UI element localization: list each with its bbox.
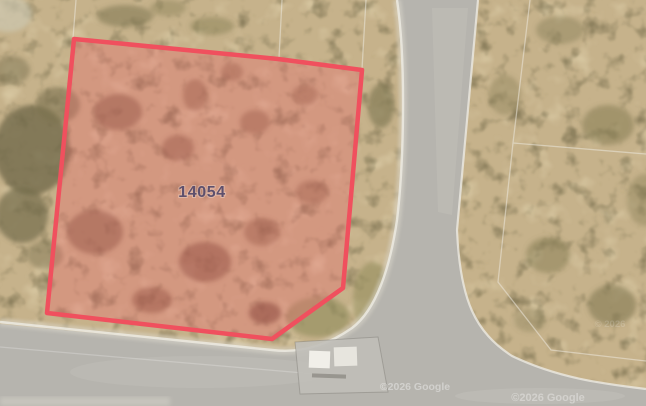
satellite-canvas: 14054 ©2026 Google ©2026 Google © 2026 — [0, 0, 646, 406]
corner-structures — [295, 337, 388, 394]
map-viewport[interactable]: 14054 ©2026 Google ©2026 Google © 2026 — [0, 0, 646, 406]
imagery-watermark: ©2026 Google — [380, 381, 450, 393]
imagery-watermark: ©2026 Google — [511, 392, 585, 404]
imagery-watermark: © 2026 — [595, 319, 626, 330]
sidewalk-band — [0, 397, 170, 406]
parcel-label: 14054 — [178, 184, 226, 201]
